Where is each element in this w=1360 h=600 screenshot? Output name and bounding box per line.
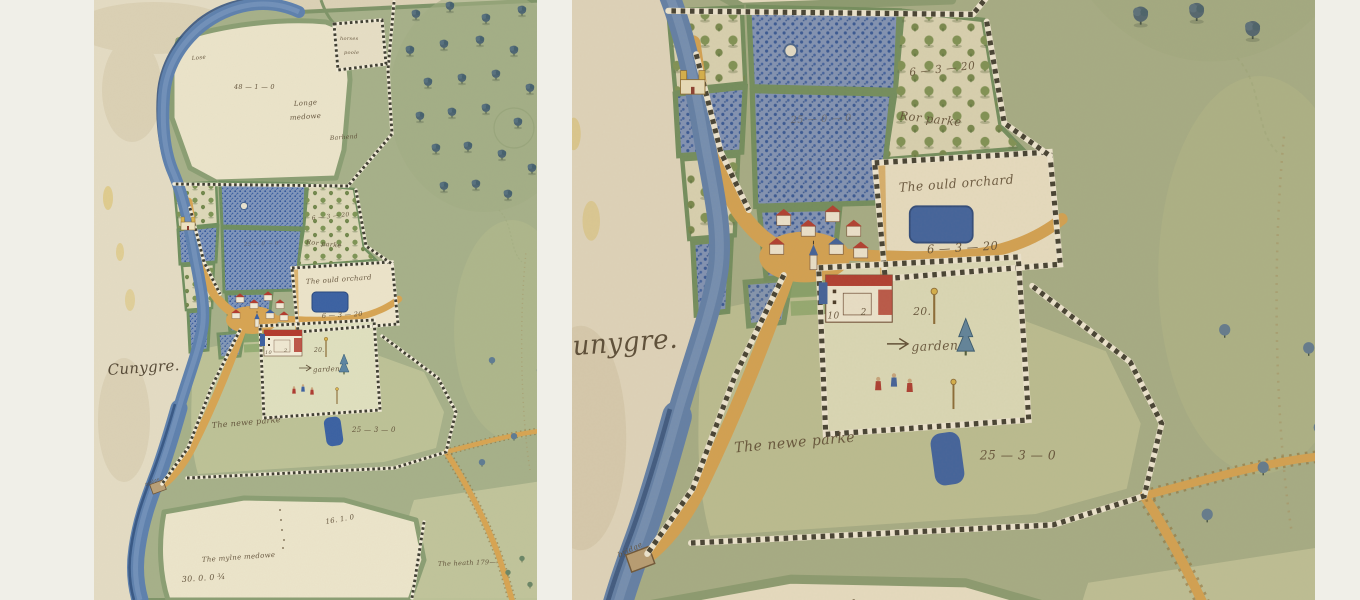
map-panel-detail [572, 0, 1315, 600]
map-overview-image [94, 0, 537, 600]
manuscript-map-screenshot: Lose 48 — 1 — 0 Longe medowe Barhend hor… [0, 0, 1360, 600]
map-detail-image [572, 0, 1315, 600]
map-panel-overview [94, 0, 537, 600]
